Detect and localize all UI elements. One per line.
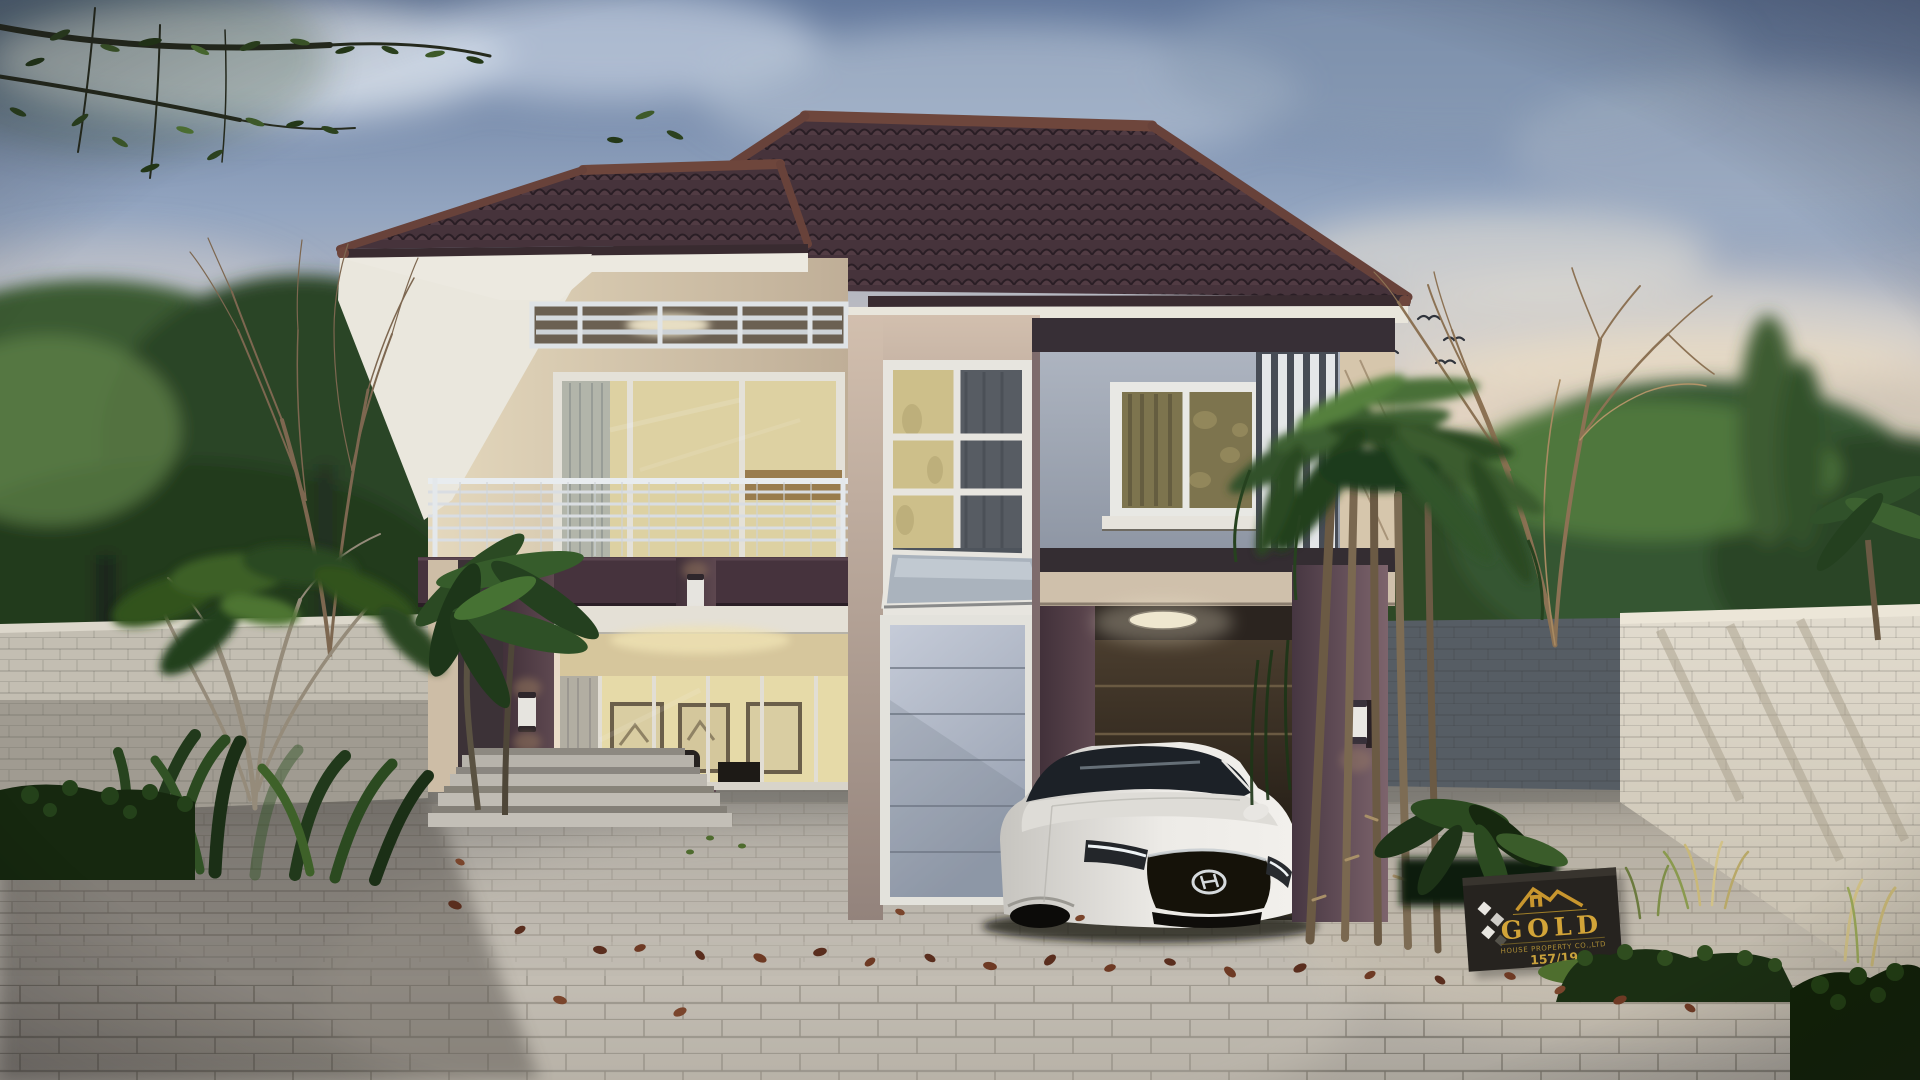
scene: GOLD HOUSE PROPERTY CO.,LTD 157/19 [0,0,1920,1080]
vignette [0,0,1920,1080]
